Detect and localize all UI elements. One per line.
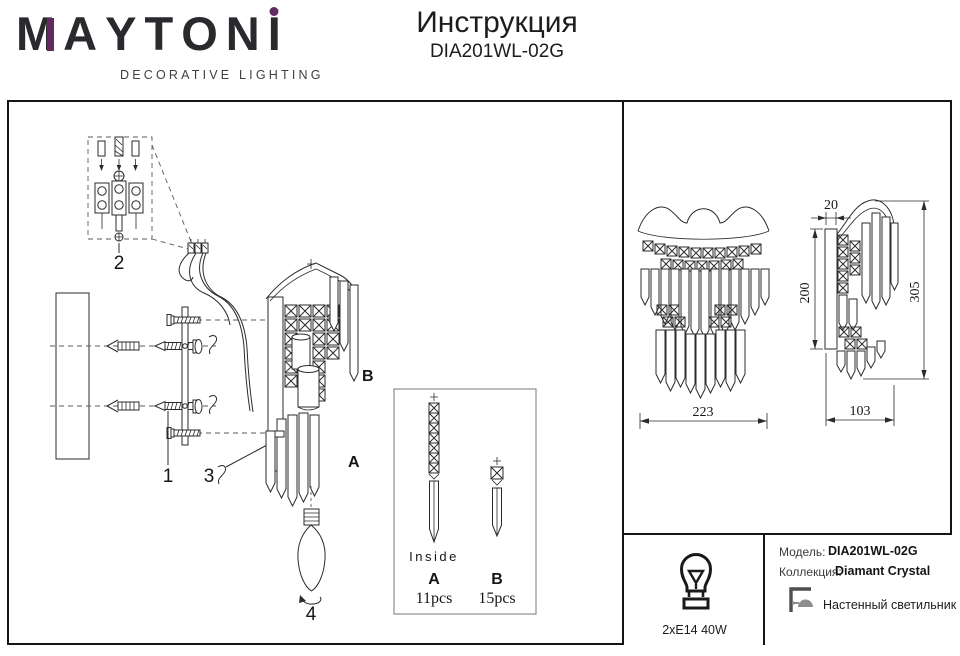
wall-section (56, 293, 89, 459)
model-number: DIA201WL-02G (347, 40, 647, 64)
side-view (825, 200, 898, 379)
inside-item-a-qty: 11pcs (416, 590, 453, 607)
inside-item-b-label: B (491, 571, 503, 588)
hook-glyph-3 (218, 466, 226, 484)
dim-plate-depth: 20 (824, 198, 838, 213)
collection-label: Коллекция: (779, 565, 842, 579)
inside-item-b-qty: 15pcs (478, 590, 515, 607)
model-label: Модель: (779, 545, 825, 559)
logo-letter: T (144, 6, 173, 62)
assembly-diagram: 2 (8, 101, 623, 644)
model-value: DIA201WL-02G (828, 544, 918, 558)
wall-anchor-top (107, 340, 139, 352)
crystal-label-b: B (362, 368, 374, 385)
part-label-2: 2 (114, 253, 125, 274)
collection-value: Diamant Crystal (835, 564, 930, 578)
logo-letter-m: M (16, 6, 55, 62)
logo-wordmark: M A Y T O N I (16, 6, 296, 62)
fixture-type-text: Настенный светильник (823, 598, 956, 612)
inside-title: Inside (409, 549, 459, 564)
wall-lamp-icon (787, 586, 815, 614)
logo-letter-i: I (268, 6, 281, 62)
product-info-cell: Модель: DIA201WL-02G Коллекция: Diamant … (765, 535, 952, 645)
front-view (638, 207, 769, 398)
part-label-3: 3 (204, 466, 215, 487)
part-label-4: 4 (306, 604, 317, 625)
logo-tagline: DECORATIVE LIGHTING (120, 68, 324, 82)
dimension-drawings: 223 20 200 (623, 101, 952, 533)
mounting-bracket (182, 307, 188, 445)
wall-anchor-bottom (107, 400, 139, 412)
dim-width: 223 (693, 405, 714, 420)
inside-parts-box (394, 389, 536, 614)
inside-item-a-label: A (428, 571, 440, 588)
logo-letter: Y (105, 6, 136, 62)
crystal-label-a: A (348, 454, 360, 471)
maytoni-logo: M A Y T O N I DECORATIVE LIGHTING (16, 6, 296, 86)
bulb-drawing (298, 509, 325, 604)
title-block: Инструкция DIA201WL-02G (347, 6, 647, 64)
centerlines (50, 320, 276, 433)
terminal-detail-box (88, 137, 192, 253)
lamp-body (266, 259, 358, 507)
logo-letter: N (226, 6, 260, 62)
bulb-icon (668, 549, 724, 621)
spec-box: 2xE14 40W Модель: DIA201WL-02G Коллекция… (624, 533, 952, 645)
bulb-spec-cell: 2xE14 40W (624, 535, 765, 645)
dim-total-height: 305 (908, 282, 923, 303)
terminal-block (188, 239, 208, 253)
page-title: Инструкция (347, 6, 647, 40)
instruction-sheet: M A Y T O N I DECORATIVE LIGHTING Инстру… (0, 0, 960, 656)
logo-letter: A (63, 6, 97, 62)
bulb-spec-text: 2xE14 40W (624, 623, 765, 637)
logo-letter: O (181, 6, 218, 62)
part-label-1: 1 (163, 466, 174, 487)
power-wires (179, 253, 253, 412)
dim-depth: 103 (850, 404, 871, 419)
dim-plate-height: 200 (798, 283, 813, 304)
